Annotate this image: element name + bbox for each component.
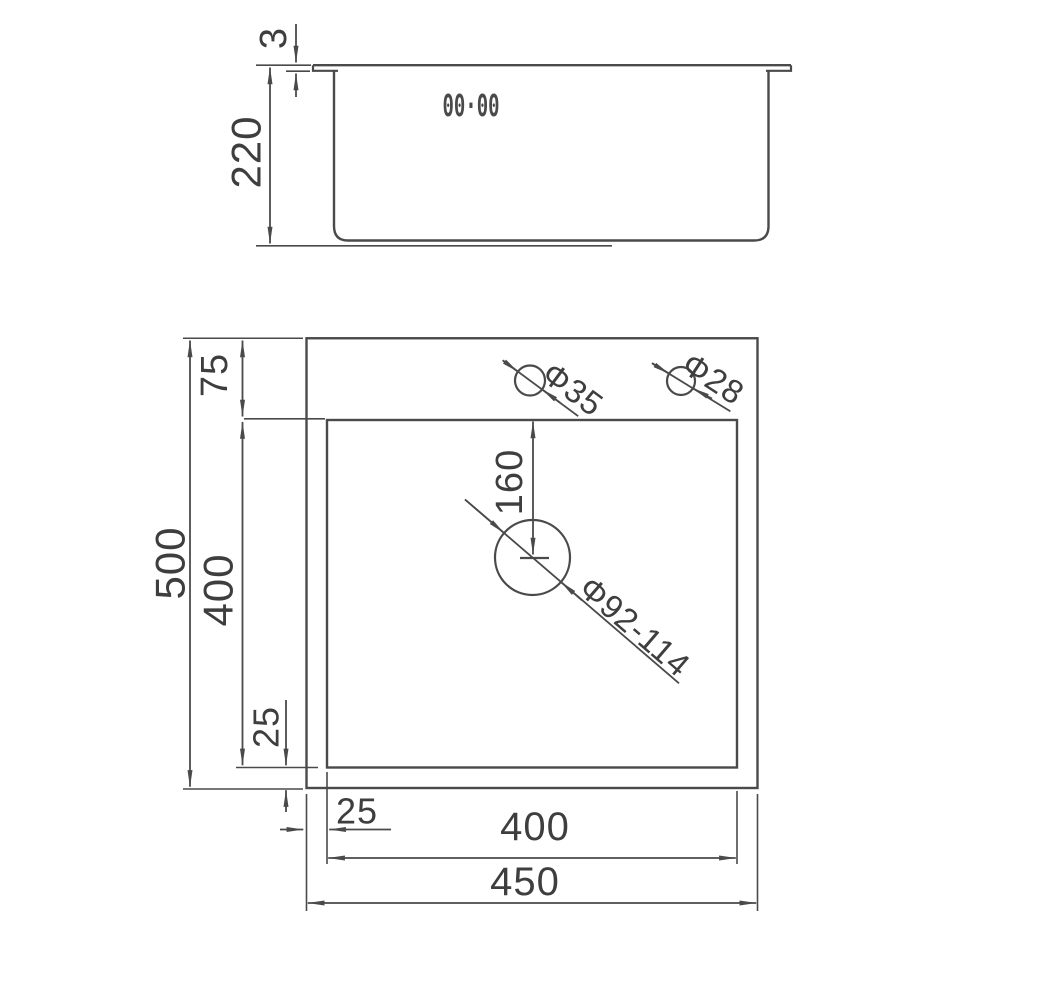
overall-length-label: 500 (147, 526, 194, 599)
dim-rim-thickness: 3 (253, 24, 311, 97)
rear-ledge-label: 75 (194, 353, 236, 397)
dim-side-ledge: 25 (280, 772, 391, 911)
dim-bowl-width: 400 (328, 791, 737, 864)
dim-front-ledge: 25 (246, 700, 287, 812)
overall-width-label: 450 (490, 860, 560, 904)
side-elevation-view: 00·00 3 220 (223, 24, 792, 246)
accessory-hole-arrow-upper (652, 363, 669, 374)
rim-thickness-label: 3 (253, 27, 295, 49)
tap-hole-arrow-upper (503, 360, 518, 371)
sink-dimension-drawing: 00·00 3 220 Φ35 (0, 0, 1040, 991)
side-ledge-label: 25 (336, 791, 378, 832)
bowl-profile-outline (334, 71, 769, 241)
bowl-width-label: 400 (500, 805, 570, 849)
bowl-inner-rect (327, 420, 737, 768)
depth-label: 220 (223, 115, 270, 188)
rim-outer-rect (307, 338, 758, 788)
tap-hole-callout: Φ35 (503, 354, 611, 423)
drain-hole-label: Φ92-114 (572, 569, 697, 684)
drain-offset-label: 160 (489, 449, 531, 515)
dim-rear-ledge: 75 (194, 341, 243, 417)
front-ledge-label: 25 (246, 706, 287, 748)
plan-view: Φ35 Φ28 Φ92-114 160 5 (147, 338, 758, 911)
brand-logo: 00·00 (443, 89, 500, 124)
bowl-length-label: 400 (195, 553, 242, 626)
dim-drain-offset: 160 (489, 422, 533, 555)
drain-hole-callout: Φ92-114 (465, 500, 698, 685)
drawing-svg: 00·00 3 220 Φ35 (0, 0, 1040, 991)
dim-depth: 220 (223, 68, 271, 244)
accessory-hole-callout: Φ28 (652, 345, 751, 412)
